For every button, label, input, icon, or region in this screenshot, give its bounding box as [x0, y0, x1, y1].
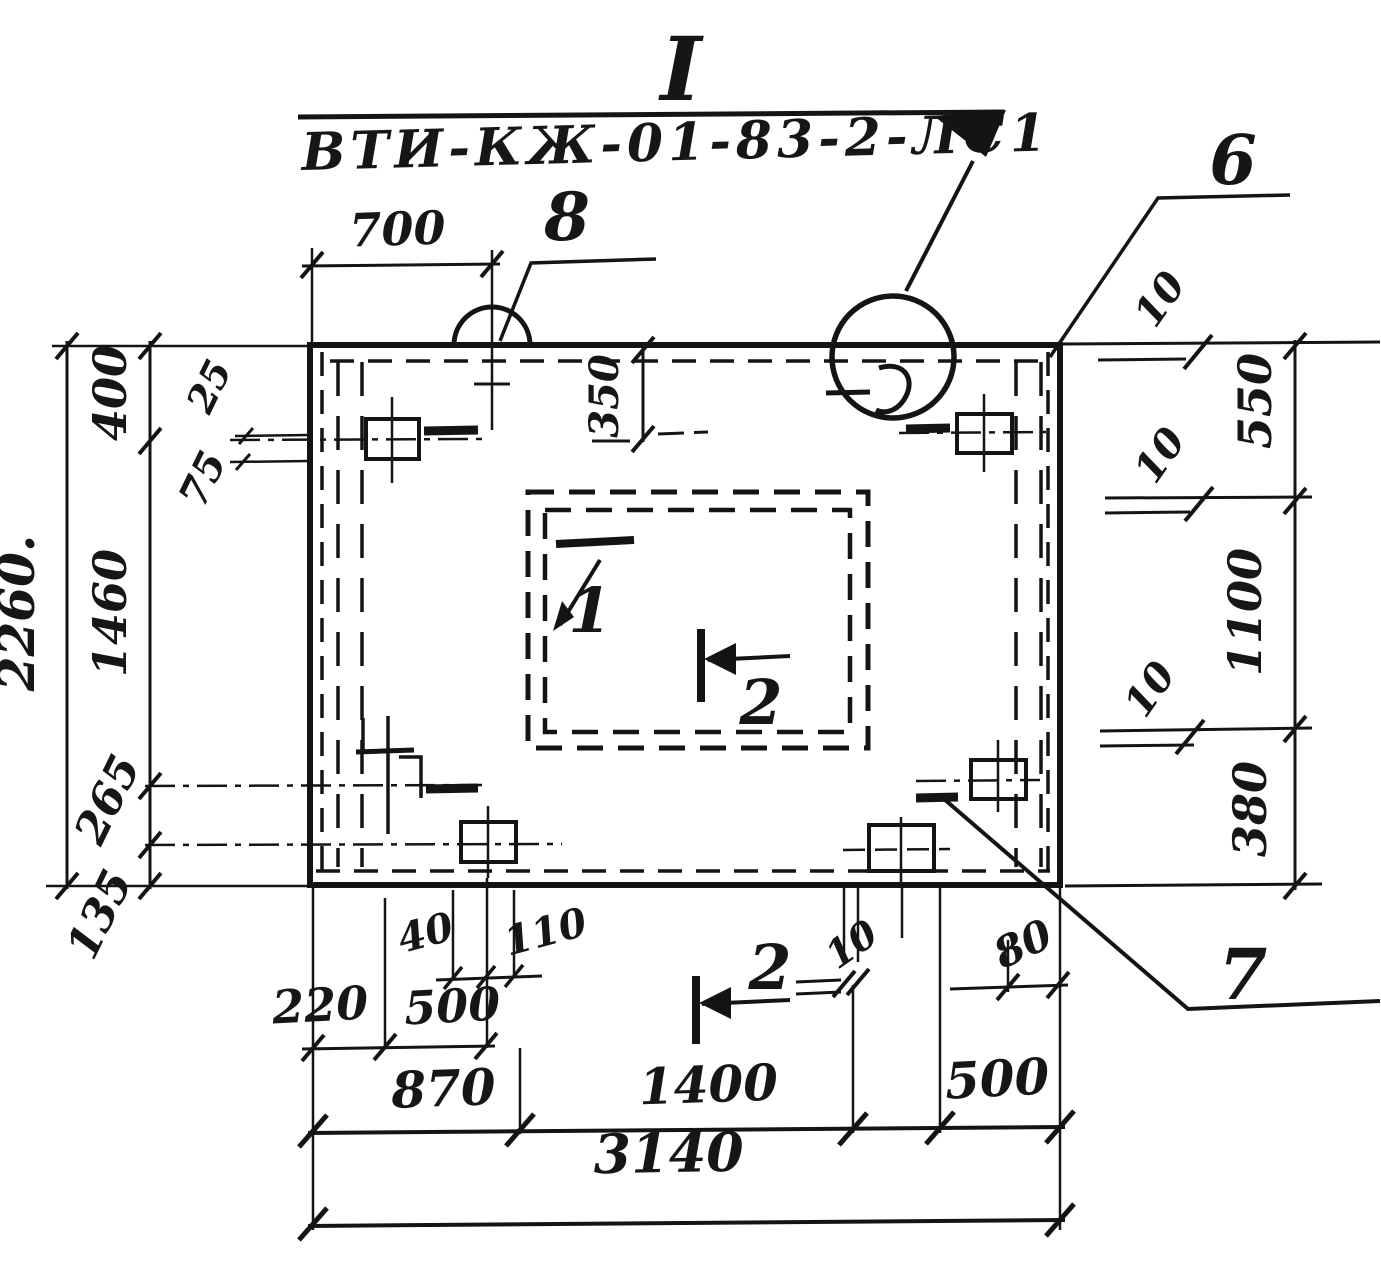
- weld-mark: [424, 430, 478, 431]
- section-2-arrowhead-icon: [704, 643, 736, 675]
- dimension-line: [302, 264, 500, 266]
- section-2-label: 2: [747, 931, 791, 1004]
- dim-10: 10: [1125, 419, 1196, 492]
- dimension-line: [308, 1220, 1065, 1226]
- dim-10: 10: [1125, 263, 1196, 336]
- callout-7: 7: [1219, 933, 1268, 1016]
- extension-line: [1063, 342, 1380, 344]
- bottom-dimensions: 40 110 220 500 10 80 870 1400 500 3140: [270, 878, 1074, 1240]
- dim-500: 500: [403, 977, 502, 1036]
- panel-plan-drawing: I ВТИ-КЖ-01-83-2-ЛС1: [0, 0, 1381, 1272]
- dim-1460: 1460: [83, 549, 137, 677]
- anchor-bar: [356, 750, 414, 752]
- extension-line: [1100, 728, 1312, 731]
- dim-1400: 1400: [638, 1053, 779, 1117]
- right-dimensions: 10 10 10 550 1100 380: [1063, 263, 1380, 899]
- dim-700: 700: [349, 200, 447, 257]
- weld-mark: [426, 788, 478, 789]
- weld-mark: [916, 797, 958, 798]
- anchor-axis-line: [145, 844, 562, 845]
- dim-25: 25: [177, 352, 241, 420]
- extension-line: [1065, 884, 1322, 886]
- dimension-line: [796, 980, 841, 982]
- section-1-bar: [556, 540, 634, 544]
- callout-8: 8: [543, 178, 590, 256]
- section-2-label: 2: [738, 666, 782, 739]
- dim-135: 135: [57, 862, 143, 967]
- dim-500: 500: [943, 1046, 1051, 1110]
- detail-circle-group: [826, 296, 954, 418]
- dim-40: 40: [393, 903, 459, 963]
- dim-80: 80: [985, 909, 1060, 979]
- dim-380: 380: [1223, 761, 1277, 857]
- detail-line: [826, 392, 870, 393]
- extension-line: [658, 432, 708, 434]
- blueprint-sheet: I ВТИ-КЖ-01-83-2-ЛС1: [0, 0, 1381, 1272]
- detail-circle: [832, 296, 954, 418]
- callout-8-leader: [500, 259, 656, 341]
- dim-550: 550: [1228, 353, 1282, 449]
- tick-mark: [1185, 487, 1213, 521]
- dim-870: 870: [389, 1057, 497, 1120]
- anchor-hook: [399, 757, 421, 798]
- extension-line: [1105, 497, 1312, 498]
- dim-3140: 3140: [593, 1120, 744, 1187]
- tick-mark: [1184, 335, 1212, 369]
- section-marks: 1 2 2: [553, 540, 792, 1044]
- extension-line: [1098, 359, 1186, 360]
- tick-mark: [847, 969, 869, 995]
- extension-line: [1100, 745, 1194, 746]
- tick-mark: [1176, 720, 1204, 754]
- weld-mark: [906, 428, 950, 429]
- lifting-loop-detail: [876, 366, 909, 412]
- dim-265: 265: [64, 747, 151, 853]
- extension-line: [1105, 512, 1190, 513]
- dim-10: 10: [817, 910, 887, 978]
- view-title: I: [657, 17, 704, 121]
- callout-7-leader: [944, 799, 1380, 1009]
- callout-6: 6: [1209, 121, 1256, 201]
- dim-75: 75: [170, 444, 237, 515]
- anchor-axis-line: [230, 439, 482, 440]
- anchor-axis-line: [145, 785, 482, 786]
- dim-350: 350: [581, 354, 628, 438]
- anchor-centerline: [916, 780, 1040, 781]
- dim-400: 400: [83, 345, 137, 441]
- dim-10: 10: [1115, 653, 1186, 726]
- detail-leader-line: [906, 161, 973, 291]
- section-2-arrowhead-icon: [699, 987, 731, 1019]
- section-1-label: 1: [568, 574, 611, 647]
- dimension-line: [302, 1046, 495, 1049]
- dim-2260: 2260.: [0, 535, 46, 693]
- dim-220: 220: [270, 976, 370, 1035]
- dim-1100: 1100: [1218, 548, 1272, 676]
